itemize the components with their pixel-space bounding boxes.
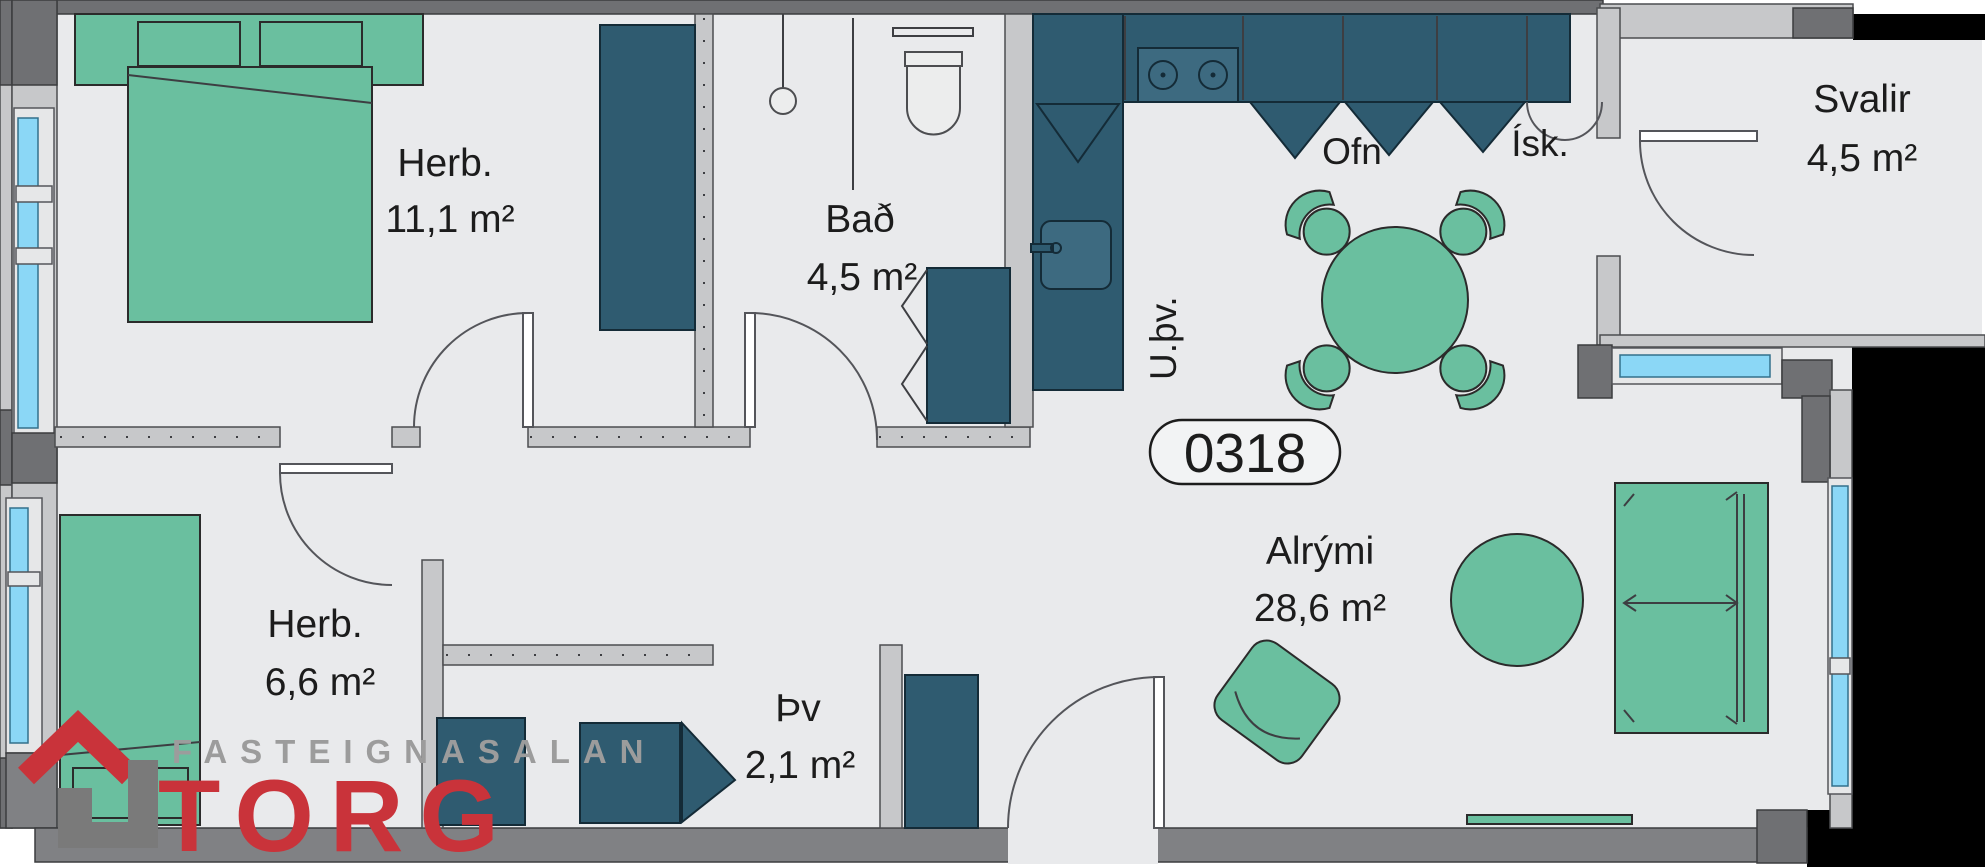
dishwasher-label: U.þv. (1143, 296, 1184, 380)
bedroom1-door-leaf (523, 313, 533, 427)
window-bedroom1 (14, 108, 54, 438)
outside-area-top (1853, 14, 1985, 40)
bathroom-door-leaf (745, 313, 755, 427)
living-area: 28,6 m² (1254, 587, 1386, 630)
laundry-area: 2,1 m² (745, 744, 856, 787)
window-bedroom2 (6, 498, 42, 753)
wall-hall-seg4 (877, 427, 1030, 447)
wall-balcony-bottom (1600, 335, 1985, 347)
hall-cabinet (905, 675, 978, 828)
toilet-tank (905, 52, 962, 66)
wall-left-outer-seg1 (0, 0, 12, 85)
wall-left-outer-seg2 (0, 410, 12, 485)
wall-balcony-left-upper (1597, 8, 1620, 138)
entrance-opening (1008, 826, 1158, 864)
wall-bottom-right-corner (1757, 810, 1807, 863)
window-living-top (1612, 348, 1782, 384)
window-living-right (1828, 478, 1852, 794)
balcony-area: 4,5 m² (1807, 137, 1918, 180)
agency-brand-text: TORG (158, 759, 515, 867)
wall-right-dark-block (1802, 396, 1830, 482)
bath-sink (770, 88, 796, 114)
floorplan-drawing: Herb. 11,1 m² Bað 4,5 m² (0, 0, 1985, 867)
oven-label: Ofn (1322, 131, 1382, 172)
bedroom2-area: 6,6 m² (265, 661, 376, 704)
bed1-mattress (128, 67, 372, 322)
unit-number-badge: 0318 (1150, 420, 1340, 484)
wall-hall-seg3 (528, 427, 750, 447)
wall-corner-right-top (1782, 360, 1832, 398)
bedroom1-label: Herb. (397, 142, 492, 185)
outside-area-right (1852, 345, 1985, 812)
dining-table (1322, 227, 1468, 373)
wall-hall-seg1 (55, 427, 280, 447)
bed1-pillow-left (138, 22, 240, 66)
tv-bench (1467, 815, 1632, 824)
bedroom1-area: 11,1 m² (385, 198, 514, 241)
wall-left-corner-mid (12, 433, 57, 483)
bathroom-label: Bað (825, 198, 894, 241)
wall-top (28, 0, 1603, 14)
bed1-pillow-right (260, 22, 362, 66)
bathroom-area: 4,5 m² (807, 256, 918, 299)
kitchen-counter-column (1033, 14, 1123, 390)
wall-hall-seg2 (392, 427, 420, 447)
living-label: Alrými (1266, 530, 1374, 573)
wall-left-corner-top (12, 0, 57, 85)
sofa (1615, 483, 1768, 733)
wall-laundry-right (880, 645, 902, 828)
cooktop (1138, 48, 1238, 102)
bedroom2-label: Herb. (267, 603, 362, 646)
laundry-label: Þv (775, 687, 821, 730)
kitchen-sink (1031, 221, 1111, 289)
entrance-door-leaf (1154, 677, 1164, 828)
fridge-label: Ísk. (1511, 123, 1569, 164)
wall-balcony-left-lower (1597, 256, 1620, 345)
wall-corner-below-balcony (1578, 345, 1612, 398)
balcony-door-leaf (1640, 131, 1757, 141)
wall-bed1-bath (695, 14, 713, 427)
wall-balcony-top-end (1793, 8, 1853, 38)
balcony-label: Svalir (1813, 78, 1911, 121)
toilet-bowl (907, 66, 960, 135)
bedroom2-door-leaf (280, 464, 392, 473)
floorplan-page: Herb. 11,1 m² Bað 4,5 m² (0, 0, 1985, 867)
balcony-floor (1600, 14, 1982, 345)
bed1-wardrobe (600, 25, 695, 330)
round-rug (1451, 534, 1583, 666)
unit-number: 0318 (1184, 422, 1306, 484)
